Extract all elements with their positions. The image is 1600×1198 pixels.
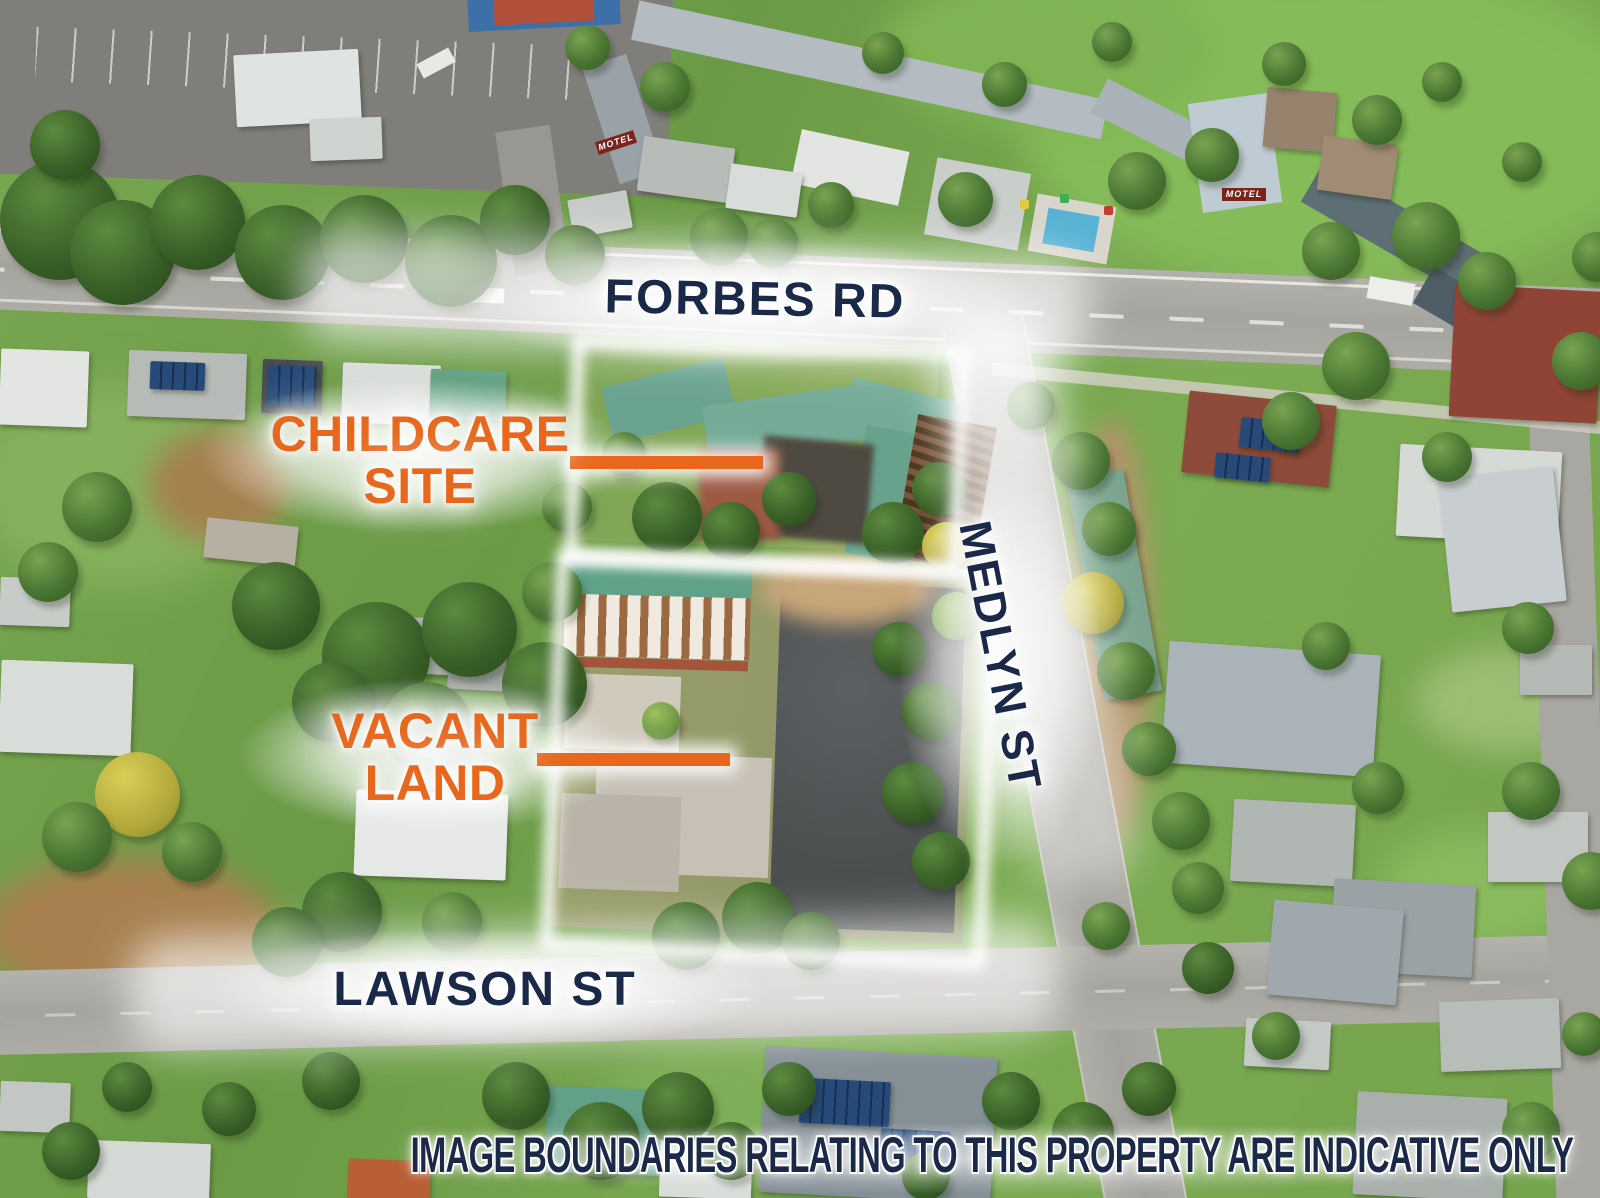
forbes-rd-label: FORBES RD [520,268,991,331]
tree [1502,762,1560,820]
tree [1108,152,1166,210]
tree [640,62,690,112]
tree [1262,42,1306,86]
tree [62,472,132,542]
tree [808,182,854,228]
tree [1092,22,1132,62]
tree [1552,332,1600,390]
lawson-st-label: LAWSON ST [255,962,715,1017]
tree [1082,902,1130,950]
tree [150,175,245,270]
childcare-site-label: CHILDCARE SITE [235,408,605,512]
tree [1152,792,1210,850]
tree [1302,622,1350,670]
tree [1185,128,1239,182]
tree [1352,762,1404,814]
tree [1182,942,1234,994]
tree [1562,852,1600,910]
tree [18,542,78,602]
tree [1252,1012,1300,1060]
tree [162,822,222,882]
disclaimer-text: IMAGE BOUNDARIES RELATING TO THIS PROPER… [389,1126,1594,1184]
tree [1572,232,1600,282]
tree [302,1052,360,1110]
vacant-land-label-line1: VACANT [255,705,615,757]
tree [938,172,993,227]
tree [982,62,1027,107]
tree [862,32,904,74]
tree [762,1062,816,1116]
tree [422,582,517,677]
tree [102,1062,152,1112]
vacant-land-label: VACANT LAND [255,705,615,809]
tree [1322,332,1390,400]
tree [232,562,320,650]
tree [1422,432,1472,482]
tree [1392,202,1460,270]
tree [42,1122,100,1180]
tree [1122,1062,1176,1116]
tree [202,1082,256,1136]
tree [1458,252,1516,310]
tree [1352,95,1402,145]
childcare-site-label-line1: CHILDCARE [235,408,605,460]
tree [1422,62,1462,102]
tree [1562,1012,1600,1056]
vacant-land-label-line2: LAND [255,757,615,809]
tree [1262,392,1320,450]
tree [482,1062,550,1130]
tree [1122,722,1176,776]
tree [30,110,100,180]
tree [1302,222,1360,280]
childcare-site-label-line2: SITE [235,460,605,512]
tree [1172,862,1224,914]
tree [42,802,112,872]
tree [1502,142,1542,182]
tree [565,25,610,70]
aerial-photo: MOTEL MOTEL [0,0,1600,1198]
tree [1502,602,1554,654]
